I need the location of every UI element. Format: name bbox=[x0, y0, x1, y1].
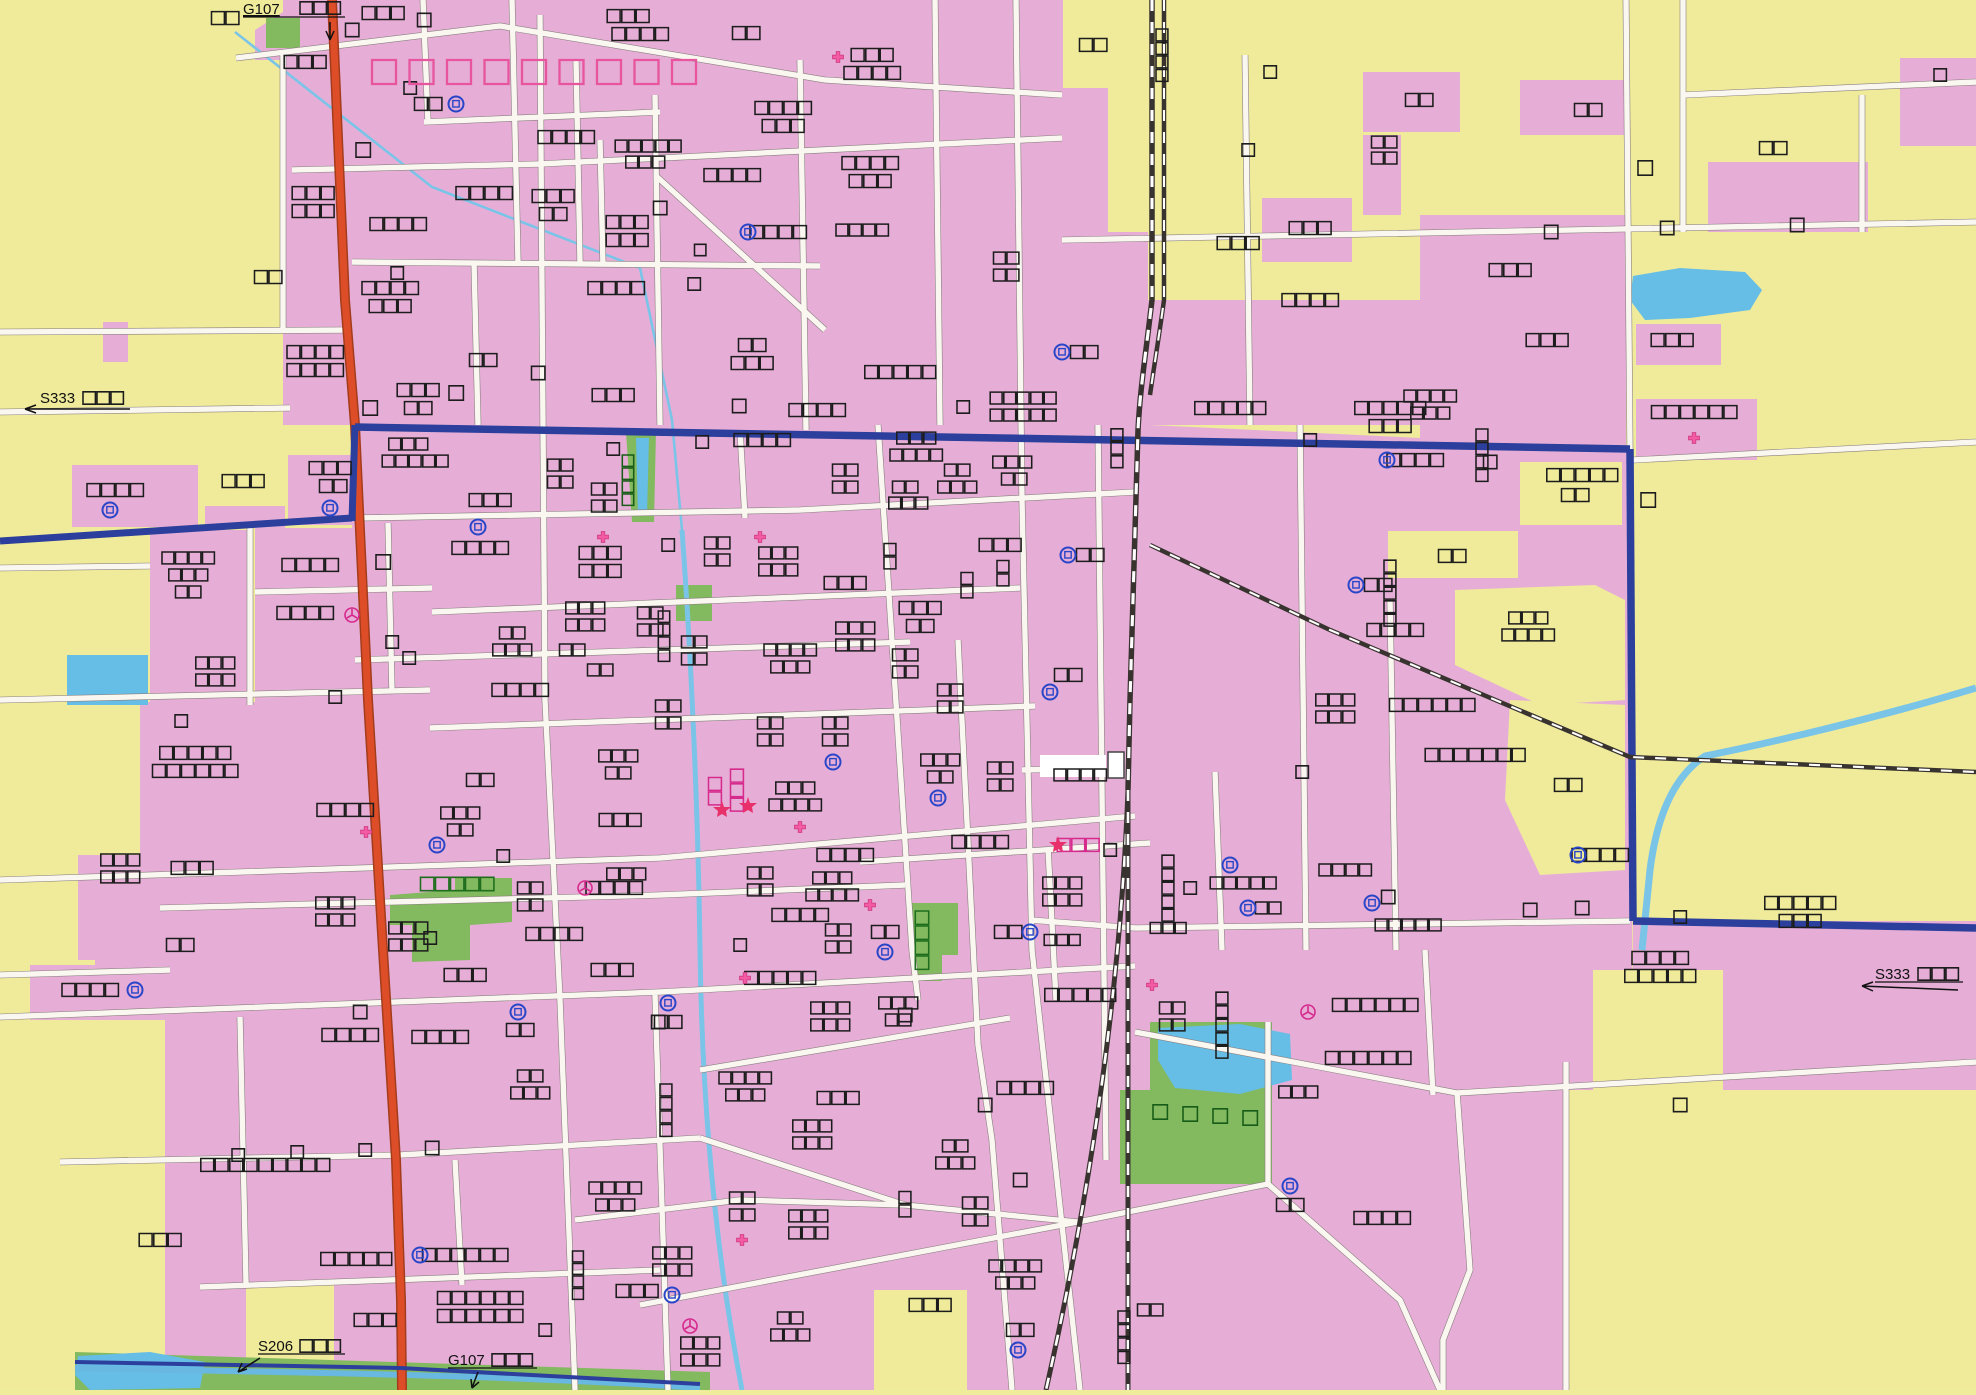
svg-text:S333: S333 bbox=[40, 390, 75, 407]
svg-text:G107: G107 bbox=[448, 1352, 485, 1369]
svg-text:G107: G107 bbox=[243, 1, 280, 18]
svg-text:S206: S206 bbox=[258, 1338, 293, 1355]
svg-text:S333: S333 bbox=[1875, 966, 1910, 983]
